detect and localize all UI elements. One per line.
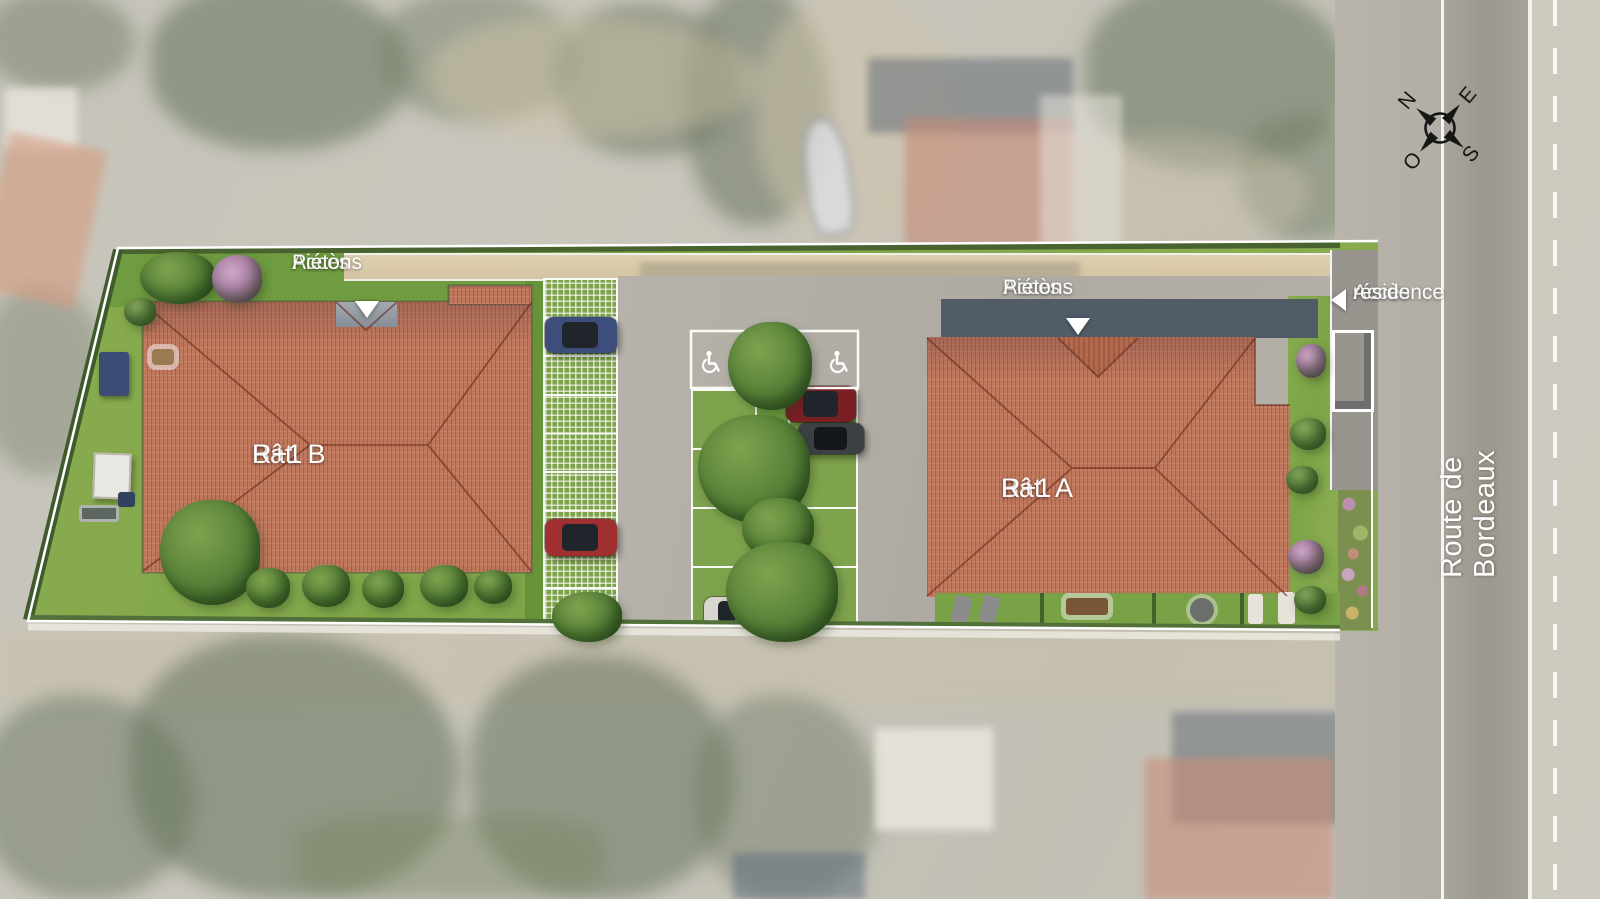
tree-canopy bbox=[246, 568, 290, 608]
tree-canopy bbox=[302, 565, 350, 607]
shrub bbox=[1294, 586, 1326, 614]
residence-access-label: Accès résidence bbox=[1331, 280, 1461, 311]
street-name-label: Route de Bordeaux bbox=[1448, 338, 1490, 578]
accessible-parking-icon bbox=[700, 350, 720, 374]
tree-canopy bbox=[140, 252, 215, 304]
tree-canopy bbox=[160, 500, 260, 605]
flowering-tree bbox=[1288, 540, 1324, 574]
access-label-line: Piétons bbox=[292, 251, 362, 275]
residence-access-arrow-icon bbox=[1331, 289, 1346, 311]
tree-canopy bbox=[728, 322, 812, 410]
compass-north: N bbox=[1394, 87, 1421, 113]
tree-canopy bbox=[726, 542, 838, 642]
tree-canopy bbox=[124, 298, 156, 326]
pedestrian-access-arrow-icon bbox=[1066, 318, 1090, 335]
accessible-parking-icon bbox=[828, 350, 848, 374]
access-label-line: Piétons bbox=[1003, 276, 1073, 300]
compass-south: S bbox=[1458, 141, 1485, 167]
building-b-level: R+1 bbox=[252, 434, 302, 474]
flowering-tree bbox=[212, 255, 262, 303]
tree-canopy bbox=[474, 570, 512, 604]
site-plan-canvas: Bât. B R+1 Bât. A R+1 Accès Piétons Accè… bbox=[0, 0, 1600, 899]
compass-east: E bbox=[1455, 83, 1482, 109]
flowering-tree bbox=[1296, 344, 1326, 378]
tree-canopy bbox=[420, 565, 468, 607]
tree-canopy bbox=[362, 570, 404, 608]
shrub bbox=[1290, 418, 1326, 450]
pedestrian-access-arrow-icon bbox=[355, 301, 379, 318]
compass-rose-icon: N E S O bbox=[1390, 78, 1490, 178]
shrub bbox=[1286, 466, 1318, 494]
building-a-level: R+1 bbox=[1001, 468, 1051, 508]
street-name: Route de Bordeaux bbox=[1436, 338, 1502, 578]
access-label-line: résidence bbox=[1353, 280, 1444, 305]
compass-west: O bbox=[1399, 148, 1427, 175]
tree-canopy bbox=[552, 592, 622, 642]
